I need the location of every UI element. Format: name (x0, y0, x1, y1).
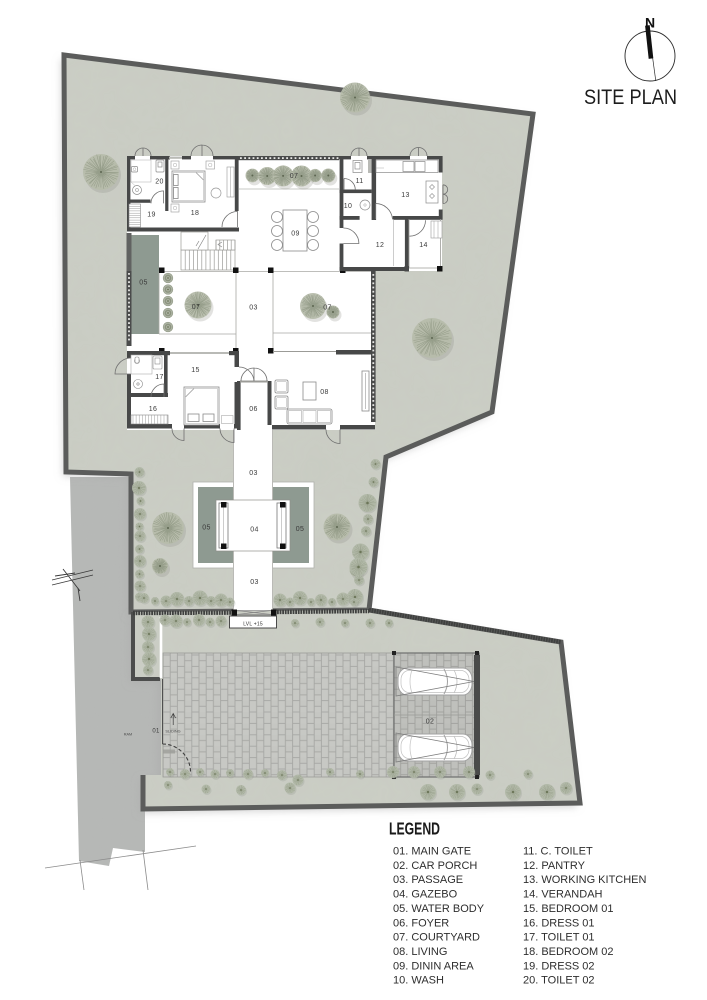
svg-text:04: 04 (250, 527, 258, 534)
svg-text:18: 18 (191, 210, 199, 217)
svg-text:07: 07 (290, 173, 298, 180)
svg-text:17. TOILET 01: 17. TOILET 01 (523, 932, 595, 944)
svg-text:17: 17 (155, 374, 163, 381)
svg-text:12. PANTRY: 12. PANTRY (523, 860, 586, 872)
svg-text:LVL +15: LVL +15 (243, 622, 263, 628)
svg-text:03. PASSAGE: 03. PASSAGE (393, 874, 463, 886)
svg-text:20: 20 (155, 179, 163, 186)
svg-text:06: 06 (249, 406, 257, 413)
svg-text:03: 03 (249, 305, 257, 312)
svg-text:16: 16 (149, 406, 157, 413)
svg-text:LEGEND: LEGEND (389, 819, 440, 839)
svg-text:15. BEDROOM 01: 15. BEDROOM 01 (523, 903, 613, 915)
svg-text:11. C. TOILET: 11. C. TOILET (523, 846, 593, 858)
svg-text:08. LIVING: 08. LIVING (393, 946, 447, 958)
svg-text:09. DININ AREA: 09. DININ AREA (393, 960, 474, 972)
svg-text:19. DRESS 02: 19. DRESS 02 (523, 960, 595, 972)
svg-text:19: 19 (147, 212, 155, 219)
svg-text:03: 03 (250, 579, 258, 586)
svg-text:07: 07 (323, 305, 331, 312)
svg-text:16. DRESS 01: 16. DRESS 01 (523, 917, 595, 929)
svg-text:14: 14 (419, 242, 427, 249)
svg-text:08: 08 (320, 389, 328, 396)
svg-text:01. MAIN GATE: 01. MAIN GATE (393, 846, 471, 858)
svg-text:05. WATER BODY: 05. WATER BODY (393, 903, 485, 915)
svg-text:13. WORKING KITCHEN: 13. WORKING KITCHEN (523, 874, 647, 886)
svg-text:15: 15 (191, 367, 199, 374)
svg-text:12: 12 (376, 242, 384, 249)
svg-text:05: 05 (202, 525, 210, 532)
svg-text:02: 02 (426, 719, 434, 726)
svg-text:18. BEDROOM 02: 18. BEDROOM 02 (523, 946, 613, 958)
svg-text:N: N (645, 15, 655, 31)
svg-text:07: 07 (192, 304, 200, 311)
svg-text:14. VERANDAH: 14. VERANDAH (523, 889, 603, 901)
svg-text:SITE PLAN: SITE PLAN (584, 86, 677, 109)
svg-text:20. TOILET 02: 20. TOILET 02 (523, 975, 595, 987)
svg-text:10. WASH: 10. WASH (393, 975, 444, 987)
svg-text:04. GAZEBO: 04. GAZEBO (393, 889, 458, 901)
svg-text:05: 05 (139, 280, 147, 287)
svg-text:11: 11 (356, 178, 364, 185)
svg-text:RAM: RAM (124, 733, 132, 737)
svg-text:SLIDING: SLIDING (165, 730, 180, 734)
svg-text:10: 10 (344, 203, 352, 210)
svg-text:09: 09 (291, 231, 299, 238)
svg-text:07. COURTYARD: 07. COURTYARD (393, 932, 480, 944)
svg-text:06. FOYER: 06. FOYER (393, 917, 449, 929)
svg-text:05: 05 (296, 526, 304, 533)
svg-text:01: 01 (152, 729, 160, 735)
svg-text:03: 03 (249, 470, 257, 477)
svg-text:13: 13 (401, 192, 409, 199)
svg-text:02. CAR PORCH: 02. CAR PORCH (393, 860, 477, 872)
